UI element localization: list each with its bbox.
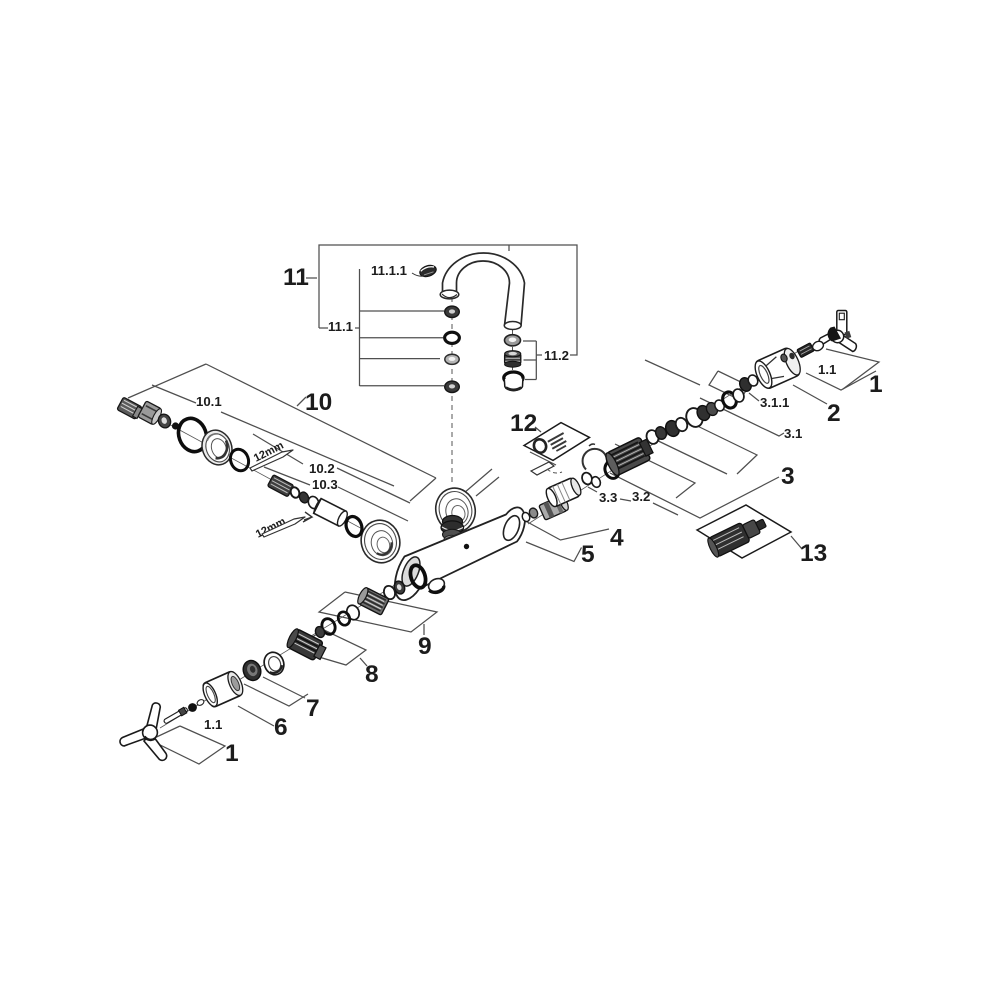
svg-text:8: 8 [365, 661, 379, 688]
svg-text:11.2: 11.2 [544, 348, 569, 363]
svg-text:4: 4 [610, 525, 624, 552]
svg-text:3.1: 3.1 [784, 426, 802, 441]
svg-text:3: 3 [781, 463, 795, 490]
svg-text:2: 2 [827, 400, 841, 427]
svg-text:11: 11 [283, 264, 309, 291]
svg-text:10.1: 10.1 [196, 394, 222, 409]
svg-text:10.3: 10.3 [312, 477, 338, 492]
svg-text:3.3: 3.3 [599, 490, 617, 505]
svg-text:10.2: 10.2 [309, 461, 335, 476]
svg-text:1.1: 1.1 [818, 362, 836, 377]
svg-text:3.2: 3.2 [632, 489, 650, 504]
svg-text:13: 13 [800, 540, 827, 567]
svg-text:9: 9 [418, 633, 432, 660]
svg-text:3.1.1: 3.1.1 [760, 395, 789, 410]
svg-text:12: 12 [510, 410, 537, 437]
svg-text:6: 6 [274, 714, 288, 741]
svg-text:1: 1 [225, 740, 239, 767]
svg-text:10: 10 [305, 389, 332, 416]
svg-text:11.1: 11.1 [328, 319, 353, 334]
svg-text:1: 1 [869, 371, 883, 398]
svg-text:5: 5 [581, 541, 595, 568]
svg-text:1.1: 1.1 [204, 717, 222, 732]
svg-text:7: 7 [306, 695, 320, 722]
svg-text:11.1.1: 11.1.1 [371, 263, 407, 278]
